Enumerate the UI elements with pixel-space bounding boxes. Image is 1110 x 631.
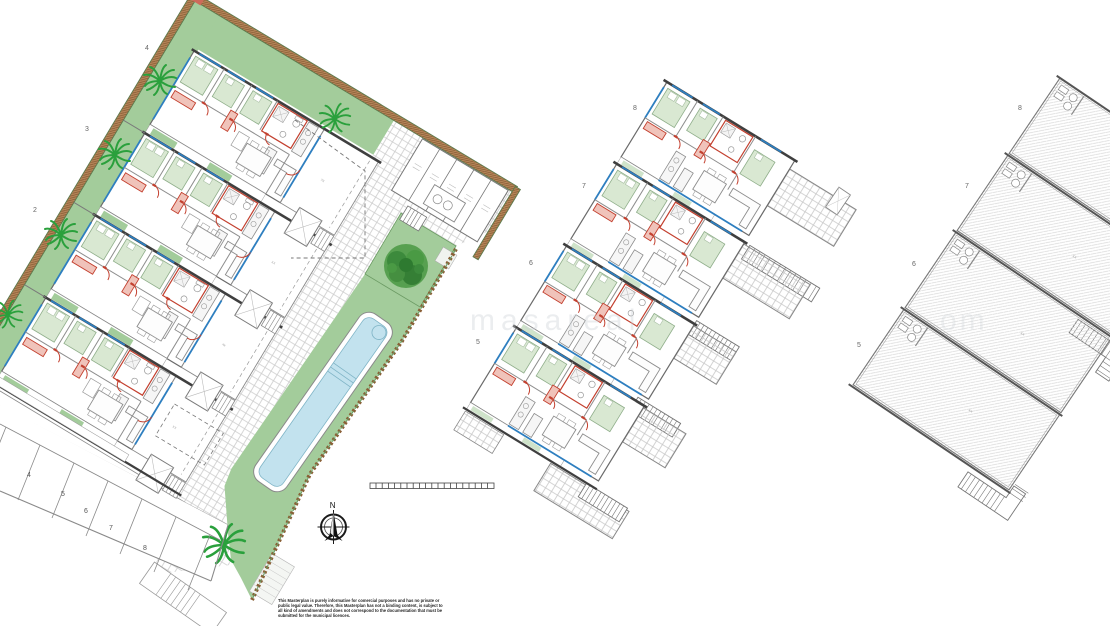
svg-text:submitted for the municipal li: submitted for the municipal licences. [278, 613, 350, 618]
svg-text:5: 5 [61, 491, 65, 498]
svg-text:8: 8 [633, 105, 637, 112]
svg-text:7: 7 [109, 525, 113, 532]
svg-text:5: 5 [857, 342, 861, 349]
svg-text:7: 7 [582, 183, 586, 190]
svg-text:6: 6 [529, 260, 533, 267]
svg-text:5: 5 [476, 339, 480, 346]
svg-text:N: N [330, 501, 336, 510]
svg-text:3: 3 [85, 126, 89, 133]
svg-text:8: 8 [1018, 105, 1022, 112]
svg-text:6: 6 [84, 508, 88, 515]
svg-text:8: 8 [143, 545, 147, 552]
svg-text:4: 4 [27, 472, 31, 479]
svg-text:om: om [940, 304, 988, 337]
svg-text:6: 6 [912, 261, 916, 268]
svg-text:2: 2 [33, 207, 37, 214]
svg-text:masareal: masareal [470, 304, 641, 337]
svg-text:7: 7 [965, 183, 969, 190]
svg-text:4: 4 [145, 45, 149, 52]
